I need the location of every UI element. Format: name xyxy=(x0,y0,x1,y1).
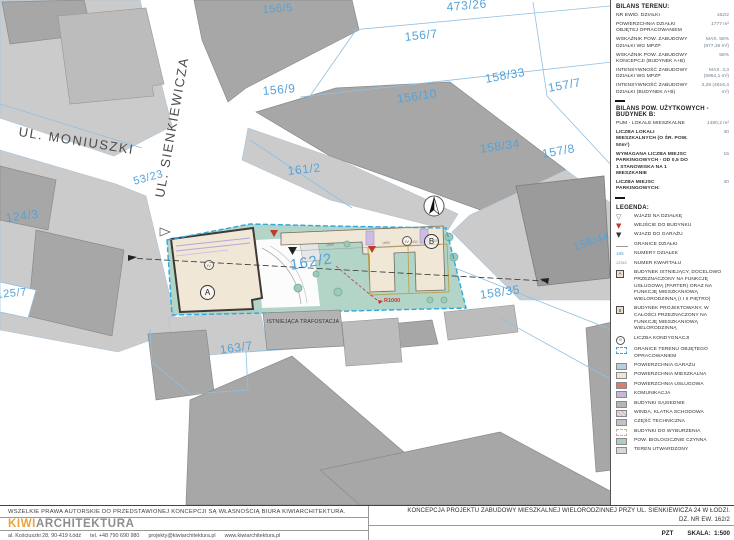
legend-item: 186 NUMERY DZIAŁEK xyxy=(616,251,729,258)
table-row: NR EWID. DZIAŁKI 162/2 xyxy=(616,13,729,19)
bilans-pow-title: BILANS POW. UŻYTKOWYCH - BUDYNEK B: xyxy=(616,106,729,118)
website-text: www.kiwiarchitektura.pl xyxy=(225,533,281,539)
trafo-building xyxy=(263,310,344,350)
parcel-label: 156/9 xyxy=(262,81,296,98)
paved-area-swatch xyxy=(616,447,631,454)
elevator-core xyxy=(366,231,374,245)
legend-item: ▼ WEJŚCIE DO BUDYNKU xyxy=(616,223,729,230)
building-a xyxy=(171,228,262,312)
title-block-left: WSZELKIE PRAWA AUTORSKIE DO PRZEDSTAWION… xyxy=(0,506,368,540)
drawing-code: PZT xyxy=(662,530,674,537)
legend-item: 12345 NUMER KWARTAŁU xyxy=(616,261,729,268)
legend-item: POW. BIOLOGICZNIE CZYNNA xyxy=(616,438,729,445)
garage-entry-icon: ▼ xyxy=(616,232,631,239)
section-divider xyxy=(615,100,625,102)
legend-item: CZĘŚĆ TECHNICZNA xyxy=(616,419,729,426)
table-row: LICZBA MIEJSC PARKINGOWYCH: 40 xyxy=(616,180,729,193)
service-area-swatch xyxy=(616,382,631,389)
legend-item: ▼ WJAZD DO GARAŻU xyxy=(616,232,729,239)
copyright-text: WSZELKIE PRAWA AUTORSKIE DO PRZEDSTAWION… xyxy=(0,506,368,518)
table-row: INTENSYWNOŚĆ ZABUDOWY DZIAŁKI (BUDYNEK A… xyxy=(616,83,729,96)
legend-title: LEGENDA: xyxy=(616,205,729,211)
trafo-label: ISTNIEJĄCA TRAFOSTACJA xyxy=(266,319,340,326)
table-row: INTENSYWNOŚĆ ZABUDOWY DZIAŁKI WG MPZP MA… xyxy=(616,68,729,81)
dimension-label: 900 xyxy=(432,239,438,243)
company-logo: KIWIARCHITEKTURA xyxy=(0,518,368,531)
info-panel: BILANS TERENU: NR EWID. DZIAŁKI 162/2 PO… xyxy=(610,0,734,505)
legend-item: TEREN UTWARDZONY xyxy=(616,447,729,454)
table-row: WSKAŹNIK POW. ZABUDOWY DZIAŁKI WG MPZP M… xyxy=(616,37,729,50)
dimension-label: 431 xyxy=(412,240,418,244)
neighbour-buildings-swatch xyxy=(616,401,631,408)
legend-item: IV LICZBA KONDYGNACJI xyxy=(616,336,729,345)
residential-area-swatch xyxy=(616,372,631,379)
north-arrow-icon xyxy=(424,196,444,216)
site-plan-map: UL. MONIUSZKI UL. SIENKIEWICZA 156/5 473… xyxy=(0,0,610,505)
parcel-number-sample: 186 xyxy=(616,251,631,258)
logo-architektura: ARCHITEKTURA xyxy=(36,518,135,530)
address-text: al. Kościuszki 28, 90-419 Łódź xyxy=(8,533,81,539)
storey-count-marker: IV xyxy=(402,236,412,246)
legend-item: BUDYNKI DO WYBURZENIA xyxy=(616,429,729,436)
legend-item: BUDYNKI SĄSIEDNIE xyxy=(616,401,729,408)
legend-item: KOMUNIKACJA xyxy=(616,391,729,398)
title-block: WSZELKIE PRAWA AUTORSKIE DO PRZEDSTAWION… xyxy=(0,505,734,540)
quarter-number-sample: 12345 xyxy=(616,261,631,268)
dimension-label: 1850 xyxy=(382,241,390,245)
bio-active-swatch xyxy=(616,438,631,445)
section-divider xyxy=(615,197,625,199)
table-row: LICZBA LOKALI MIESZKALNYCH (O ŚR. POW. 5… xyxy=(616,130,729,149)
legend-item: GRANICE TERENU OBJĘTEGO OPRACOWANIEM xyxy=(616,347,729,361)
legend-item: POWIERZCHNIA MIESZKALNA xyxy=(616,372,729,379)
building-entry-icon: ▼ xyxy=(616,223,631,230)
drawing-sheet: UL. MONIUSZKI UL. SIENKIEWICZA 156/5 473… xyxy=(0,0,734,540)
title-block-right: KONCEPCJA PROJEKTU ZABUDOWY MIESZKALNEJ … xyxy=(368,506,734,540)
circulation-swatch xyxy=(616,391,631,398)
dimension-label: 1850 xyxy=(326,243,334,247)
demolition-swatch xyxy=(616,429,631,436)
existing-building-icon: A xyxy=(616,270,631,278)
logo-kiwi: KIWI xyxy=(8,518,36,530)
technical-part-swatch xyxy=(616,419,631,426)
legend-item: A BUDYNEK ISTNIEJĄCY, DOCELOWO PRZEZNACZ… xyxy=(616,270,729,304)
drawing-scale-row: PZT SKALA: 1:500 xyxy=(369,526,734,540)
table-row: WSKAŹNIK POW. ZABUDOWY KONCEPCJI (BUDYNE… xyxy=(616,53,729,66)
turning-radius-label: R1000 xyxy=(384,298,400,304)
project-title: KONCEPCJA PROJEKTU ZABUDOWY MIESZKALNEJ … xyxy=(369,506,734,526)
plot-entry-icon: ▽ xyxy=(616,214,631,221)
building-a-label: A xyxy=(200,285,215,300)
garage-area-swatch xyxy=(616,363,631,370)
table-row: PUM - LOKALE MIESZKALNE 1480,2 m² xyxy=(616,121,729,127)
scale-text: SKALA: 1:500 xyxy=(687,530,730,537)
elevator-stair-swatch xyxy=(616,410,631,417)
storey-count-icon: IV xyxy=(616,336,631,345)
bilans-terenu-title: BILANS TERENU: xyxy=(616,4,729,10)
email-text: projekty@kiwiarchitektura.pl xyxy=(148,533,215,539)
legend-item: POWIERZCHNIA GARAŻU xyxy=(616,363,729,370)
site-boundary-icon xyxy=(616,347,631,354)
legend-item: ▽ WJAZD NA DZIAŁKĘ xyxy=(616,214,729,221)
designed-building-icon: B xyxy=(616,306,631,314)
phone-text: tel. +48 790 690 980 xyxy=(90,533,139,539)
legend-item: POWIERZCHNIA USŁUGOWA xyxy=(616,382,729,389)
parcel-label: 156/5 xyxy=(262,2,293,16)
company-contact: al. Kościuszki 28, 90-419 Łódź tel. +48 … xyxy=(0,531,368,540)
storey-count-marker: IV xyxy=(204,260,214,270)
boundary-line-icon xyxy=(616,242,631,249)
legend-item: B BUDYNEK PROJEKTOWANY, W CAŁOŚCI PRZEZN… xyxy=(616,306,729,333)
plot-entry-icon xyxy=(160,228,170,236)
legend-item: GRANICE DZIAŁKI xyxy=(616,242,729,249)
table-row: WYMAGANA LICZBA MIEJSC PARKINGOWYCH - OD… xyxy=(616,152,729,178)
table-row: POWIERZCHNIA DZIAŁKI OBJĘTEJ OPRACOWANIE… xyxy=(616,22,729,35)
legend-item: WINDA, KLATKA SCHODOWA xyxy=(616,410,729,417)
